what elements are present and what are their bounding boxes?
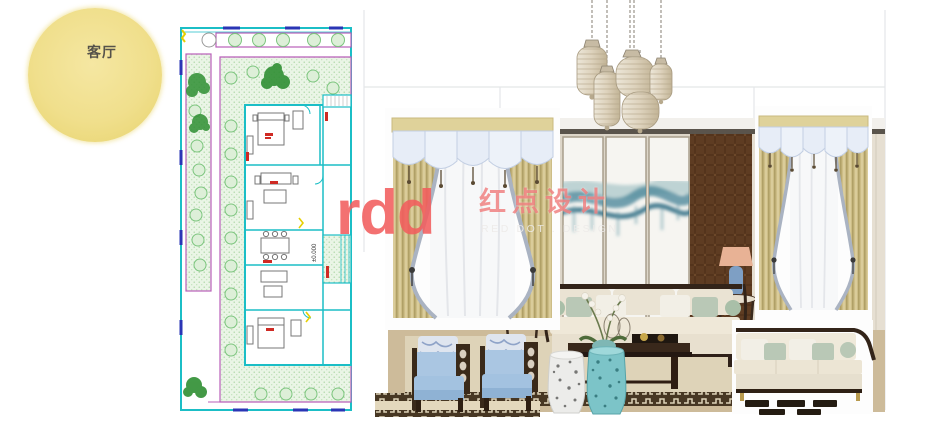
room-bubble: 客厅	[28, 8, 162, 142]
valance-band	[759, 116, 868, 128]
sofa-product	[732, 320, 874, 415]
plan-top-shrub-band	[202, 33, 351, 47]
floor-plan: ±0.000	[173, 16, 357, 416]
pendant-lantern-cluster	[577, 0, 672, 133]
moodboard-collage	[360, 0, 945, 427]
curtain-left	[385, 108, 560, 330]
moodboard-canvas: 客厅	[0, 0, 945, 427]
garden-stool-turquoise	[587, 347, 626, 414]
plan-building: ±0.000	[245, 95, 351, 365]
plan-left-garden-band	[186, 54, 211, 291]
lantern	[616, 50, 654, 97]
garden-stool-white	[548, 351, 585, 413]
room-bubble-label: 客厅	[28, 42, 162, 62]
plan-elevation-label: ±0.000	[312, 243, 318, 262]
valance-band	[392, 118, 553, 132]
curtain-right	[755, 106, 872, 324]
